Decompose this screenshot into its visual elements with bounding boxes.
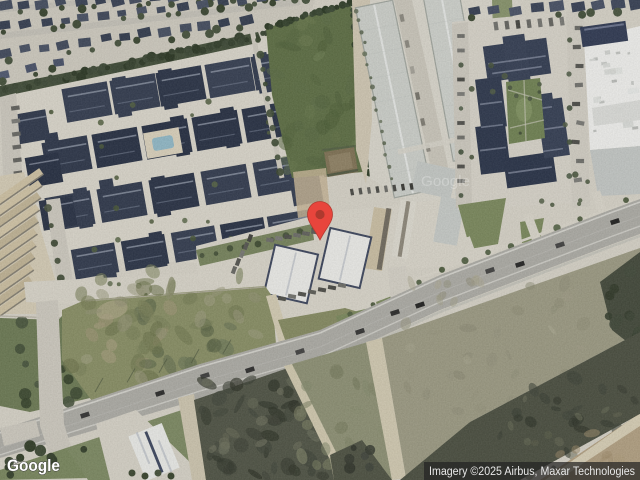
svg-text:Google: Google <box>421 173 470 190</box>
svg-text:Google: Google <box>7 456 60 475</box>
svg-text:Imagery ©2025 Airbus, Maxar Te: Imagery ©2025 Airbus, Maxar Technologies <box>429 466 635 478</box>
